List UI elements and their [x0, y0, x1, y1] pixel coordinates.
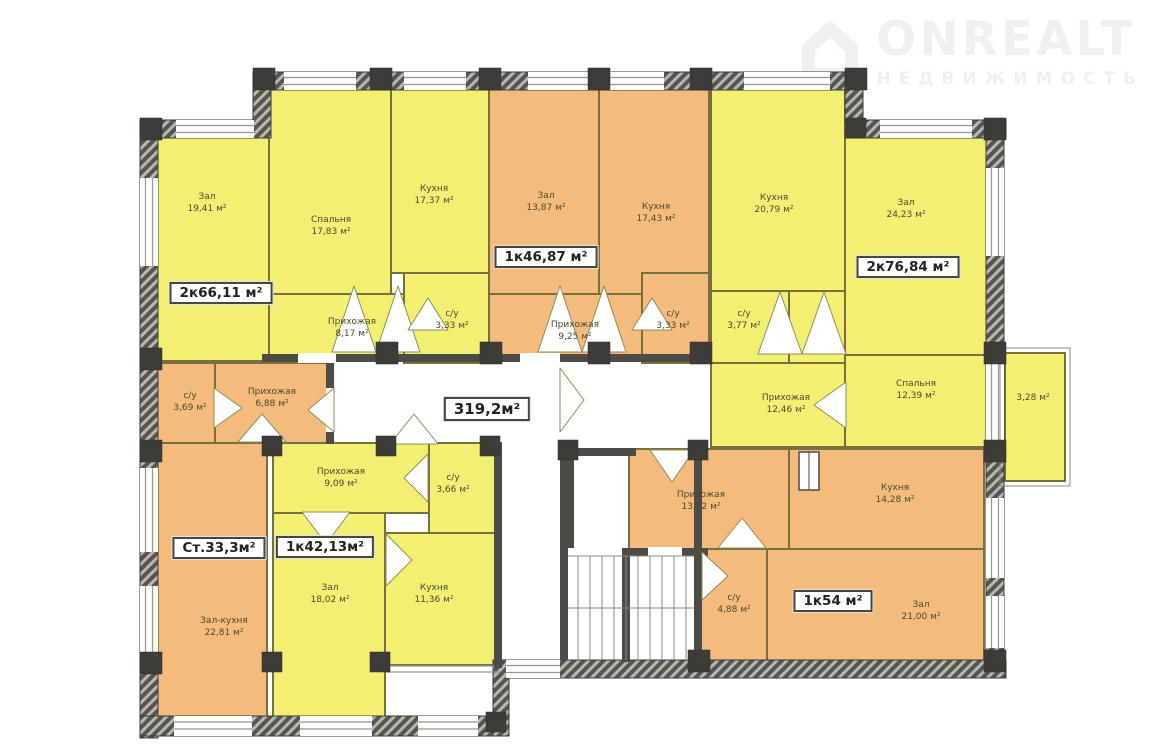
apartment-area-badge: 1к42,13м²: [276, 536, 374, 558]
room-label: Кухня17,37 м²: [414, 183, 453, 207]
room-label: Кухня17,43 м²: [636, 201, 675, 225]
room-label: Кухня11,36 м²: [414, 582, 453, 606]
room-label: Прихожая9,25 м²: [551, 319, 599, 343]
apartment-area-badge: 1к46,87 м²: [495, 246, 598, 268]
room-label: Спальня17,83 м²: [311, 214, 351, 238]
stairwell: [568, 556, 694, 660]
balcony-apt3: [1004, 352, 1066, 482]
watermark-subtitle: НЕДВИЖИМОСТЬ: [876, 69, 1144, 89]
balcony-label: 3,28 м²: [1016, 392, 1049, 404]
room-spalnya-apt1: [268, 85, 392, 297]
room-label: Зал19,41 м²: [187, 191, 226, 215]
room-label: Кухня14,28 м²: [875, 482, 914, 506]
watermark-brand: ONREALT: [876, 16, 1135, 63]
room-label: Прихожая13,92 м²: [677, 489, 725, 513]
room-label: с/у3,66 м²: [436, 472, 469, 496]
room-hall-apt3: [788, 290, 846, 364]
room-label: Зал21,00 м²: [901, 599, 940, 623]
room-label: с/у3,33 м²: [656, 308, 689, 332]
apartment-area-badge: 2к66,11 м²: [170, 282, 273, 304]
room-label: с/у3,69 м²: [173, 390, 206, 414]
room-label: Зал-кухня22,81 м²: [200, 615, 248, 639]
room-label: Кухня20,79 м²: [754, 192, 793, 216]
room-label: Спальня12,39 м²: [896, 378, 936, 402]
room-label: Прихожая12,46 м²: [762, 392, 810, 416]
room-label: с/у4,88 м²: [717, 592, 750, 616]
room-label: Зал18,02 м²: [310, 582, 349, 606]
room-label: с/у3,77 м²: [727, 308, 760, 332]
onrealt-house-icon: [798, 16, 862, 80]
room-zal-kuhnya-apt4: [150, 442, 268, 718]
floorplan-canvas: ONREALT НЕДВИЖИМОСТЬ: [0, 0, 1170, 748]
room-label: Прихожая8,17 м²: [328, 316, 376, 340]
room-zal-apt3: [844, 122, 1002, 356]
room-label: Прихожая9,09 м²: [317, 466, 365, 490]
apartment-area-badge: 2к76,84 м²: [857, 256, 960, 278]
room-label: Прихожая6,88 м²: [248, 386, 296, 410]
corridor-area-badge: 319,2м²: [444, 397, 530, 421]
apartment-area-badge: 1к54 м²: [794, 590, 873, 612]
room-kuhnya-apt1: [390, 85, 490, 274]
room-label: Зал13,87 м²: [526, 190, 565, 214]
room-zal-apt1: [150, 122, 270, 362]
onrealt-watermark: ONREALT НЕДВИЖИМОСТЬ: [798, 16, 1144, 89]
room-label: Зал24,23 м²: [886, 197, 925, 221]
room-kuhnya-apt2: [598, 85, 710, 295]
apartment-area-badge: Ст.33,3м²: [172, 537, 265, 559]
room-kuhnya-apt3: [710, 85, 846, 292]
room-label: с/у3,33 м²: [435, 308, 468, 332]
